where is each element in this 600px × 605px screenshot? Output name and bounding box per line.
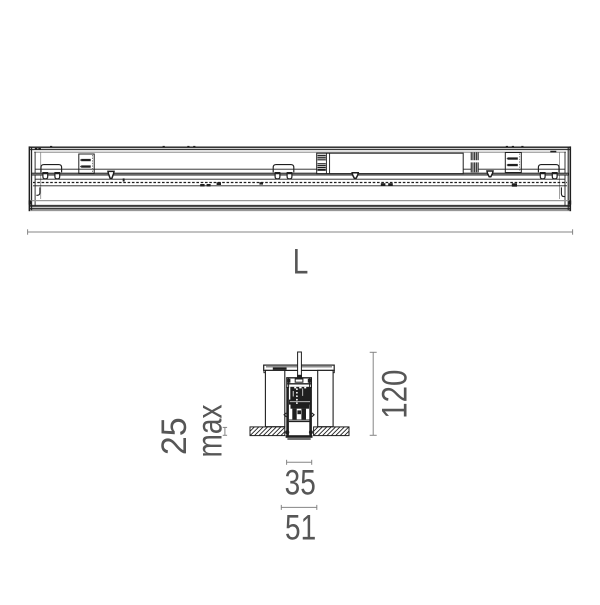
svg-text:L: L [293,241,309,281]
svg-text:25: 25 [155,417,194,455]
svg-text:51: 51 [285,507,316,547]
svg-text:120: 120 [375,370,414,419]
svg-text:max: max [189,404,229,457]
svg-text:35: 35 [285,462,316,502]
